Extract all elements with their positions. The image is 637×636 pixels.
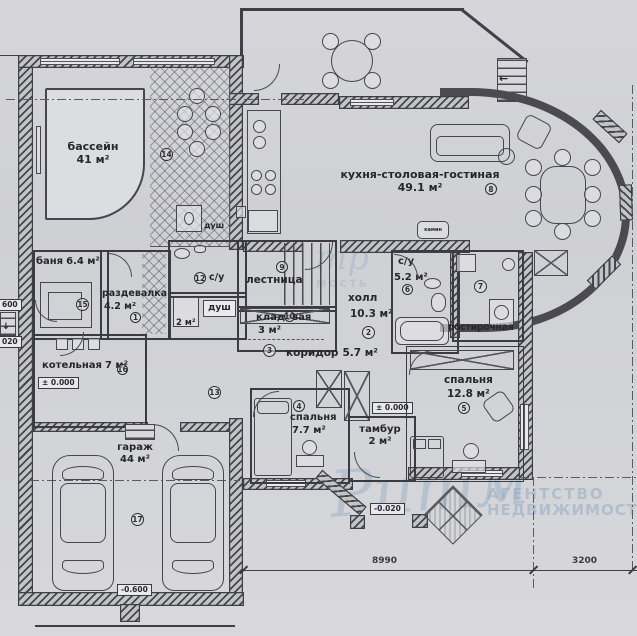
deck-chair bbox=[205, 124, 221, 140]
room-label-koridor: коридор 5.7 м² bbox=[286, 347, 378, 360]
hob-burner bbox=[265, 184, 276, 195]
room-name: коридор bbox=[286, 347, 338, 360]
pool-shower-drain bbox=[184, 212, 194, 225]
terrace-chair bbox=[364, 33, 381, 50]
laundry-sink bbox=[502, 258, 515, 271]
room-label-dush2: душ bbox=[208, 303, 231, 314]
dining-chair bbox=[584, 210, 601, 227]
extension-line-right bbox=[632, 85, 633, 572]
watermark-agency-line2: НЕДВИЖИМОСТИ bbox=[487, 501, 637, 519]
deck-chair bbox=[189, 141, 205, 157]
room-number-kitchen: 8 bbox=[485, 183, 497, 195]
dining-table bbox=[540, 166, 586, 224]
hob-burner bbox=[265, 170, 276, 181]
dining-chair bbox=[525, 159, 542, 176]
dimension-value-3200: 3200 bbox=[572, 556, 597, 566]
room-area-razdevalka: 4.2 м² bbox=[104, 301, 136, 312]
elevation-mark-garage: -0.600 bbox=[117, 584, 152, 596]
side-table bbox=[498, 148, 515, 165]
bed-pillow bbox=[428, 439, 441, 449]
fireplace: камин bbox=[417, 221, 449, 239]
hob-burner bbox=[251, 170, 262, 181]
laundry-cabinet bbox=[456, 254, 476, 272]
wardrobe bbox=[344, 371, 370, 421]
room-label-postirochnaya: постирочная bbox=[448, 322, 513, 333]
porch-post bbox=[350, 515, 365, 529]
room-area: 41 м² bbox=[55, 153, 131, 166]
terrace-outline-top bbox=[240, 8, 464, 11]
room-area-bedroom2: 12.8 м² bbox=[447, 388, 490, 401]
shower-label-box: душ bbox=[203, 300, 236, 317]
dining-chair bbox=[525, 210, 542, 227]
hob-burner bbox=[251, 184, 262, 195]
deck-chair bbox=[205, 106, 221, 122]
door-arc bbox=[152, 424, 179, 451]
room-area-bedroom1: 7.7 м² bbox=[292, 425, 326, 437]
sink bbox=[194, 245, 206, 253]
pool-radiator bbox=[36, 126, 41, 174]
electric-panel bbox=[236, 206, 246, 218]
deck-chair bbox=[189, 88, 205, 104]
room-label-su-pool: с/у bbox=[209, 272, 224, 283]
room-label-kitchen: кухня-столовая-гостиная 49.1 м² bbox=[330, 168, 510, 194]
desk-chair bbox=[302, 440, 317, 455]
kitchen-sink bbox=[253, 136, 266, 149]
wall-garage-top-b bbox=[180, 422, 230, 432]
sink bbox=[424, 278, 441, 289]
terrace-outline-left bbox=[240, 8, 243, 57]
room-label-lestnitsa: лестница bbox=[246, 274, 303, 287]
car-cabin bbox=[170, 483, 216, 543]
room-number-su-pool: 12 bbox=[194, 272, 206, 284]
room-label-pool-shower: душ bbox=[204, 221, 224, 231]
garage-steps bbox=[125, 424, 155, 440]
car-windshield bbox=[62, 466, 104, 480]
sofa-seat-line bbox=[436, 136, 504, 156]
dimension-value-8990: 8990 bbox=[372, 556, 397, 566]
floor-plan-sheet: тр мость Ритм АГЕНТСТВО НЕДВИЖИМОСТИ ← к… bbox=[0, 0, 637, 636]
boiler-unit bbox=[88, 338, 100, 350]
wardrobe bbox=[316, 370, 342, 408]
wall-left bbox=[18, 55, 33, 605]
room-number-bedroom1: 4 bbox=[293, 400, 305, 412]
room-number-kladovaya: 10 bbox=[284, 311, 295, 322]
bathtub-inner bbox=[400, 321, 444, 341]
desk-chair bbox=[463, 443, 479, 459]
car-rear-window bbox=[62, 560, 104, 574]
car-windshield bbox=[172, 466, 214, 480]
terrace-chair bbox=[364, 72, 381, 89]
room-name: котельная bbox=[42, 360, 102, 372]
room-number-garage: 17 bbox=[131, 513, 144, 526]
elevation-mark: ± 0.000 bbox=[38, 377, 79, 389]
room-number-bedroom2: 5 bbox=[458, 402, 470, 414]
room-area-dush2: 2 м² bbox=[176, 318, 196, 328]
wall-pool-right bbox=[229, 55, 243, 250]
room-area: 2 м² bbox=[352, 436, 408, 448]
dining-chair bbox=[584, 186, 601, 203]
car-cabin bbox=[60, 483, 106, 543]
room-name: кухня-столовая-гостиная bbox=[330, 168, 510, 181]
deck-chair bbox=[177, 124, 193, 140]
window bbox=[350, 99, 394, 106]
deck-chair bbox=[177, 106, 193, 122]
desk bbox=[452, 460, 486, 473]
room-label-bedroom1: спальня bbox=[290, 412, 337, 424]
room-label-hall: холл bbox=[348, 292, 377, 305]
elevation-mark-porch: -0.020 bbox=[370, 503, 405, 515]
room-number-postirochnaya: 7 bbox=[474, 280, 487, 293]
ground-line bbox=[35, 625, 235, 627]
room-label-bedroom2: спальня bbox=[444, 374, 493, 387]
dining-chair bbox=[584, 159, 601, 176]
terrace-chair bbox=[322, 33, 339, 50]
room-name: бассейн bbox=[55, 140, 131, 153]
room-name: тамбур bbox=[352, 424, 408, 436]
car-rear-window bbox=[172, 560, 214, 574]
garage-gate-pier bbox=[120, 604, 140, 622]
room-name: баня bbox=[36, 256, 63, 268]
room-label-pool: бассейн 41 м² bbox=[55, 140, 131, 166]
room-number-koridor: 3 bbox=[263, 344, 276, 357]
room-area: 5.7 м² bbox=[342, 347, 377, 360]
room-area-kladovaya: 3 м² bbox=[258, 325, 281, 337]
room-area-hall: 10.3 м² bbox=[350, 308, 393, 321]
extension-line bbox=[533, 477, 534, 590]
steps-arrow-icon: ↓ bbox=[2, 322, 10, 333]
dimension-line bbox=[243, 570, 637, 571]
elevation-mark-left-bottom: 020 bbox=[0, 336, 22, 348]
bed-pillow bbox=[413, 439, 426, 449]
room-label-tambur: тамбур 2 м² bbox=[352, 424, 408, 448]
room-label-razdevalka: раздевалка bbox=[102, 288, 167, 299]
room-number-hall13: 13 bbox=[208, 386, 221, 399]
toilet bbox=[431, 293, 446, 312]
window bbox=[40, 58, 120, 65]
bay-pier bbox=[619, 184, 633, 220]
fridge bbox=[248, 210, 278, 232]
steps-arrow-icon: ← bbox=[499, 72, 508, 85]
axis-line bbox=[520, 477, 637, 478]
dashed-line bbox=[248, 339, 324, 340]
room-label-kotelnaya: котельная 7 м² bbox=[42, 360, 128, 372]
room-number-su-big: 6 bbox=[402, 284, 413, 295]
room-number-banya: 15 bbox=[76, 298, 89, 311]
room-area: 49.1 м² bbox=[330, 181, 510, 194]
dining-chair bbox=[554, 149, 571, 166]
room-number-kotelnaya: 16 bbox=[117, 364, 128, 375]
fireplace-label: камин bbox=[424, 227, 442, 233]
room-number-lestnitsa: 9 bbox=[276, 261, 288, 273]
dining-chair bbox=[525, 186, 542, 203]
room-number-pool: 14 bbox=[160, 148, 173, 161]
window-shaft bbox=[534, 250, 568, 276]
dining-chair bbox=[554, 223, 571, 240]
elevation-mark-left-top: 600 bbox=[0, 299, 22, 311]
washing-machine-drum bbox=[494, 305, 509, 320]
room-number-razdevalka: 1 bbox=[130, 312, 141, 323]
room-number-hall: 2 bbox=[362, 326, 375, 339]
terrace-chair bbox=[322, 72, 339, 89]
window bbox=[133, 58, 215, 65]
room-area: 6.4 м² bbox=[66, 256, 100, 268]
door-arc bbox=[254, 64, 280, 91]
desk bbox=[296, 455, 324, 467]
room-label-banya: баня 6.4 м² bbox=[36, 256, 100, 268]
axis-line bbox=[6, 99, 306, 100]
toilet bbox=[174, 248, 190, 259]
wall-line bbox=[0, 55, 18, 56]
terrace-outline-diagonal bbox=[460, 8, 528, 63]
kitchen-sink bbox=[253, 120, 266, 133]
